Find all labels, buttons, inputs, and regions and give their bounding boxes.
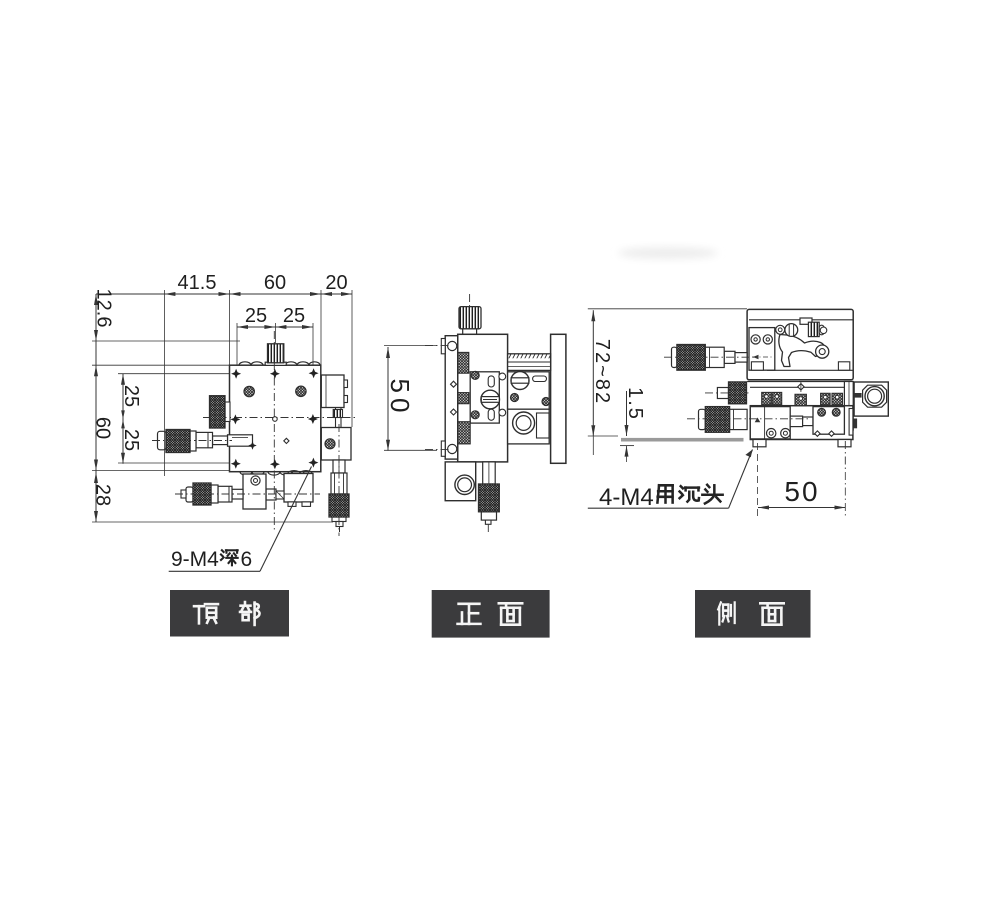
svg-text:41.5: 41.5: [178, 272, 217, 294]
svg-text:20: 20: [325, 272, 347, 294]
svg-text:4-M4: 4-M4: [599, 484, 654, 511]
svg-text:50: 50: [784, 476, 819, 507]
svg-text:25: 25: [245, 305, 267, 327]
svg-text:12.6: 12.6: [93, 289, 115, 328]
svg-text:60: 60: [92, 417, 114, 439]
svg-text:50: 50: [385, 379, 415, 418]
svg-text:6: 6: [241, 548, 253, 571]
svg-text:25: 25: [283, 305, 305, 327]
svg-text:9-M4: 9-M4: [171, 548, 219, 571]
svg-text:25: 25: [120, 385, 142, 407]
svg-text:28: 28: [92, 484, 114, 506]
svg-text:25: 25: [120, 429, 142, 451]
svg-text:72~82: 72~82: [591, 339, 613, 405]
svg-text:1.5: 1.5: [624, 387, 646, 421]
svg-text:60: 60: [264, 272, 286, 294]
